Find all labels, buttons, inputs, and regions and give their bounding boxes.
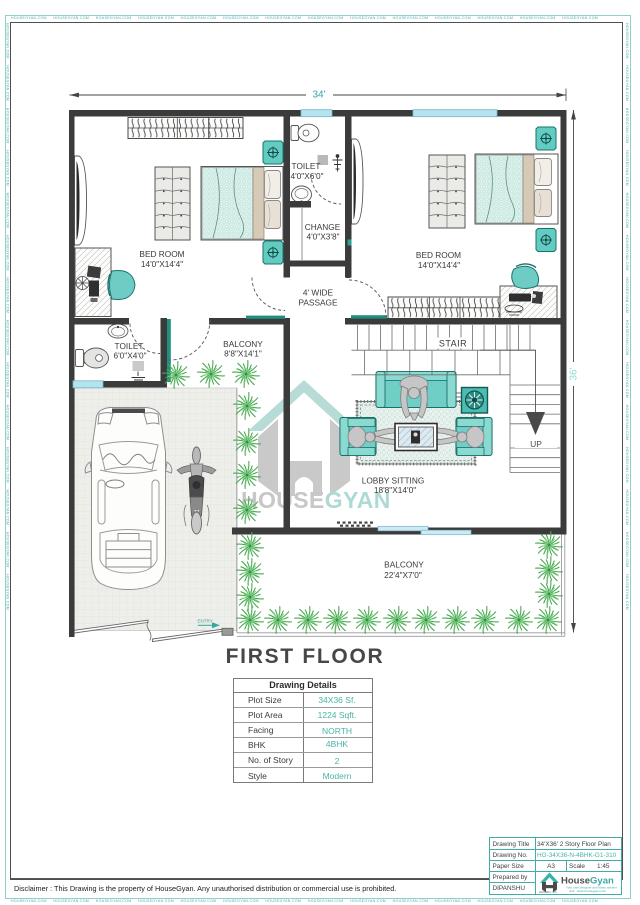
svg-text:STAIR: STAIR	[439, 339, 467, 349]
svg-text:TOILET: TOILET	[292, 161, 321, 171]
svg-text:HOUSEGYAN: HOUSEGYAN	[241, 487, 391, 513]
svg-text:visit : www.housegyan.com: visit : www.housegyan.com	[569, 889, 607, 893]
svg-text:PASSAGE: PASSAGE	[298, 298, 338, 308]
svg-text:4'0"X3'8": 4'0"X3'8"	[306, 232, 339, 242]
svg-text:36': 36'	[569, 367, 580, 380]
svg-text:8'8"X14'1": 8'8"X14'1"	[224, 349, 262, 359]
svg-text:6'0"X4'0": 6'0"X4'0"	[113, 351, 146, 361]
svg-text:14'0"X14'4": 14'0"X14'4"	[141, 259, 183, 269]
svg-text:ENTRY: ENTRY	[198, 619, 213, 624]
svg-text:HOUSEGYAN: HOUSEGYAN	[539, 890, 557, 894]
svg-text:UP: UP	[530, 439, 542, 449]
svg-text:BALCONY: BALCONY	[384, 560, 424, 570]
svg-text:BALCONY: BALCONY	[223, 339, 263, 349]
svg-text:LOBBY SITTING: LOBBY SITTING	[362, 476, 425, 486]
svg-text:14'0"X14'4": 14'0"X14'4"	[418, 260, 460, 270]
svg-text:22'4"X7'0": 22'4"X7'0"	[384, 570, 422, 580]
svg-text:18'8"X14'0": 18'8"X14'0"	[374, 485, 416, 495]
svg-text:34': 34'	[312, 90, 325, 101]
svg-text:BED ROOM: BED ROOM	[416, 250, 461, 260]
svg-text:BED ROOM: BED ROOM	[139, 249, 184, 259]
svg-text:CHANGE: CHANGE	[305, 222, 341, 232]
svg-text:4'0"X6'0": 4'0"X6'0"	[290, 171, 323, 181]
svg-text:TOILET: TOILET	[115, 341, 144, 351]
svg-text:4' WIDE: 4' WIDE	[303, 288, 334, 298]
